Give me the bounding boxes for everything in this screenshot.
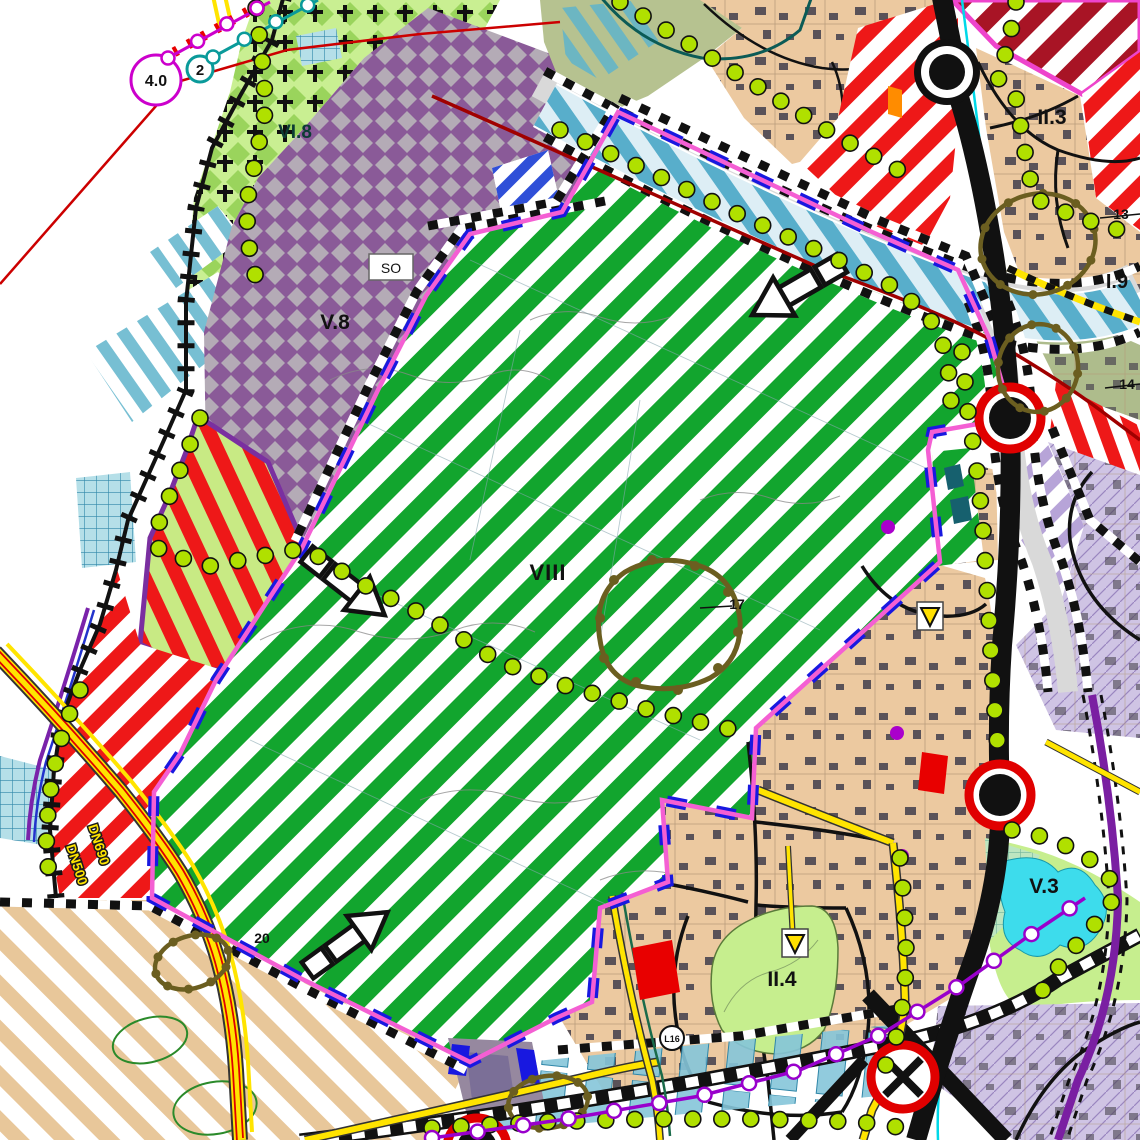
- so-label: SO: [381, 260, 401, 276]
- red-parcel: [632, 940, 680, 1000]
- road-l16-label: L16: [664, 1034, 680, 1044]
- screenshot-root: 4.0 2 VI.8 SO V.8 VIII 17 20 II.3 13 I.9…: [0, 0, 1140, 1140]
- triangle-marker: [782, 929, 808, 957]
- purple-dot-marker: [881, 520, 895, 534]
- triangle-marker: [917, 602, 943, 630]
- zone-ii4-label: II.4: [767, 968, 797, 991]
- node-2-label: 2: [196, 62, 204, 79]
- ref-13-label: 13: [1113, 206, 1129, 222]
- rail-crossing-node: [871, 1045, 935, 1109]
- zone-v8-label: V.8: [320, 311, 350, 334]
- ref-14-label: 14: [1119, 376, 1135, 392]
- roundabout-node: [914, 39, 980, 105]
- junction-node: [969, 764, 1031, 826]
- zone-vi8-label: VI.8: [278, 122, 312, 143]
- junction-node: [979, 387, 1041, 449]
- zone-ii3-label: II.3: [1037, 106, 1066, 129]
- zone-viii-label: VIII: [529, 560, 566, 585]
- red-parcel: [918, 752, 948, 794]
- ref-17-label: 17: [729, 596, 745, 612]
- zone-i9-label: I.9: [1106, 271, 1128, 293]
- zoning-map-canvas[interactable]: 4.0 2 VI.8 SO V.8 VIII 17 20 II.3 13 I.9…: [0, 0, 1140, 1140]
- purple-dot-marker: [890, 726, 904, 740]
- zone-v3-label: V.3: [1029, 875, 1059, 898]
- orange-parcel: [888, 86, 902, 118]
- ref-20-label: 20: [254, 930, 270, 946]
- node-40-label: 4.0: [145, 73, 167, 90]
